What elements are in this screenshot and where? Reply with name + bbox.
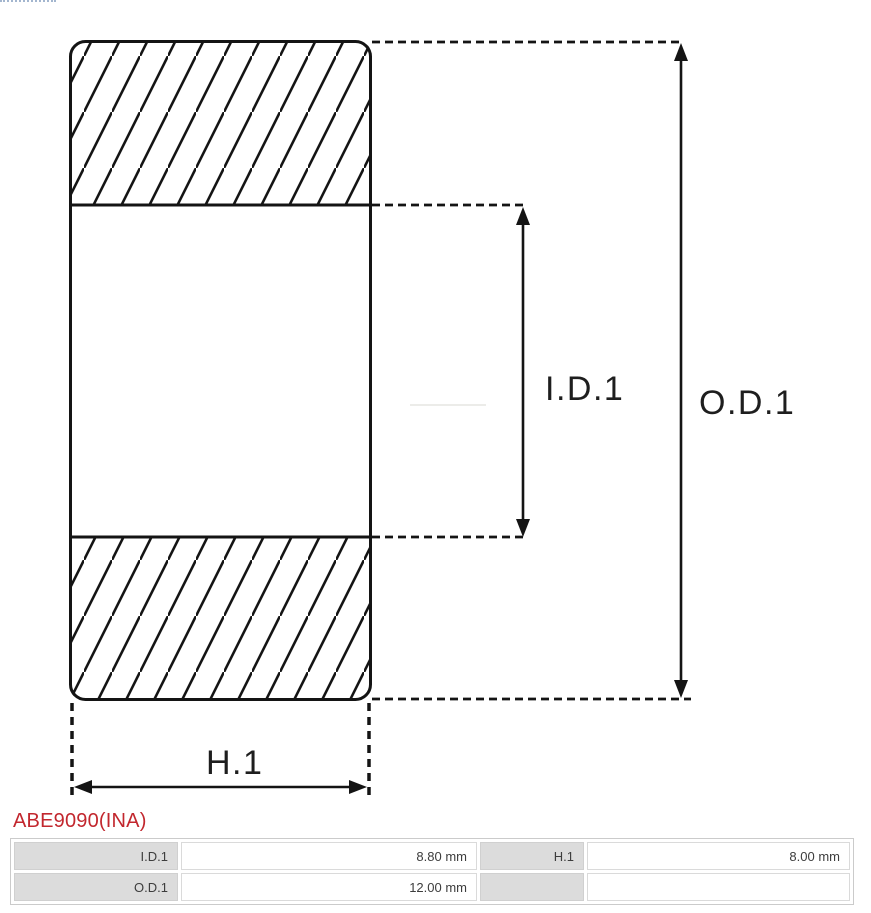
outer-diameter-label: O.D.1 bbox=[699, 384, 795, 422]
height-arrow bbox=[74, 780, 367, 794]
bearing-top-ring-hatch bbox=[70, 41, 371, 205]
page: { "window": { "width": 871, "height": 91… bbox=[0, 0, 871, 913]
bearing-diagram-svg: I.D.1 O.D.1 H.1 bbox=[0, 0, 871, 808]
spec-table: I.D.1 8.80 mm H.1 8.00 mm O.D.1 12.00 mm bbox=[10, 838, 854, 905]
inner-diameter-arrow bbox=[516, 207, 530, 537]
spec-value-empty bbox=[587, 873, 850, 901]
spec-value-h1: 8.00 mm bbox=[587, 842, 850, 870]
spec-label-h1: H.1 bbox=[480, 842, 584, 870]
spec-value-id1: 8.80 mm bbox=[181, 842, 477, 870]
bearing-bottom-ring-hatch bbox=[70, 537, 371, 700]
spec-label-od1: O.D.1 bbox=[14, 873, 178, 901]
outer-diameter-arrow bbox=[674, 43, 688, 698]
bearing-diagram: I.D.1 O.D.1 H.1 bbox=[0, 0, 871, 808]
spec-label-id1: I.D.1 bbox=[14, 842, 178, 870]
spec-value-od1: 12.00 mm bbox=[181, 873, 477, 901]
spec-label-empty bbox=[480, 873, 584, 901]
part-number-link[interactable]: ABE9090(INA) bbox=[13, 809, 147, 833]
extension-lines bbox=[372, 42, 691, 699]
inner-diameter-label: I.D.1 bbox=[545, 370, 624, 408]
height-label: H.1 bbox=[206, 744, 263, 782]
